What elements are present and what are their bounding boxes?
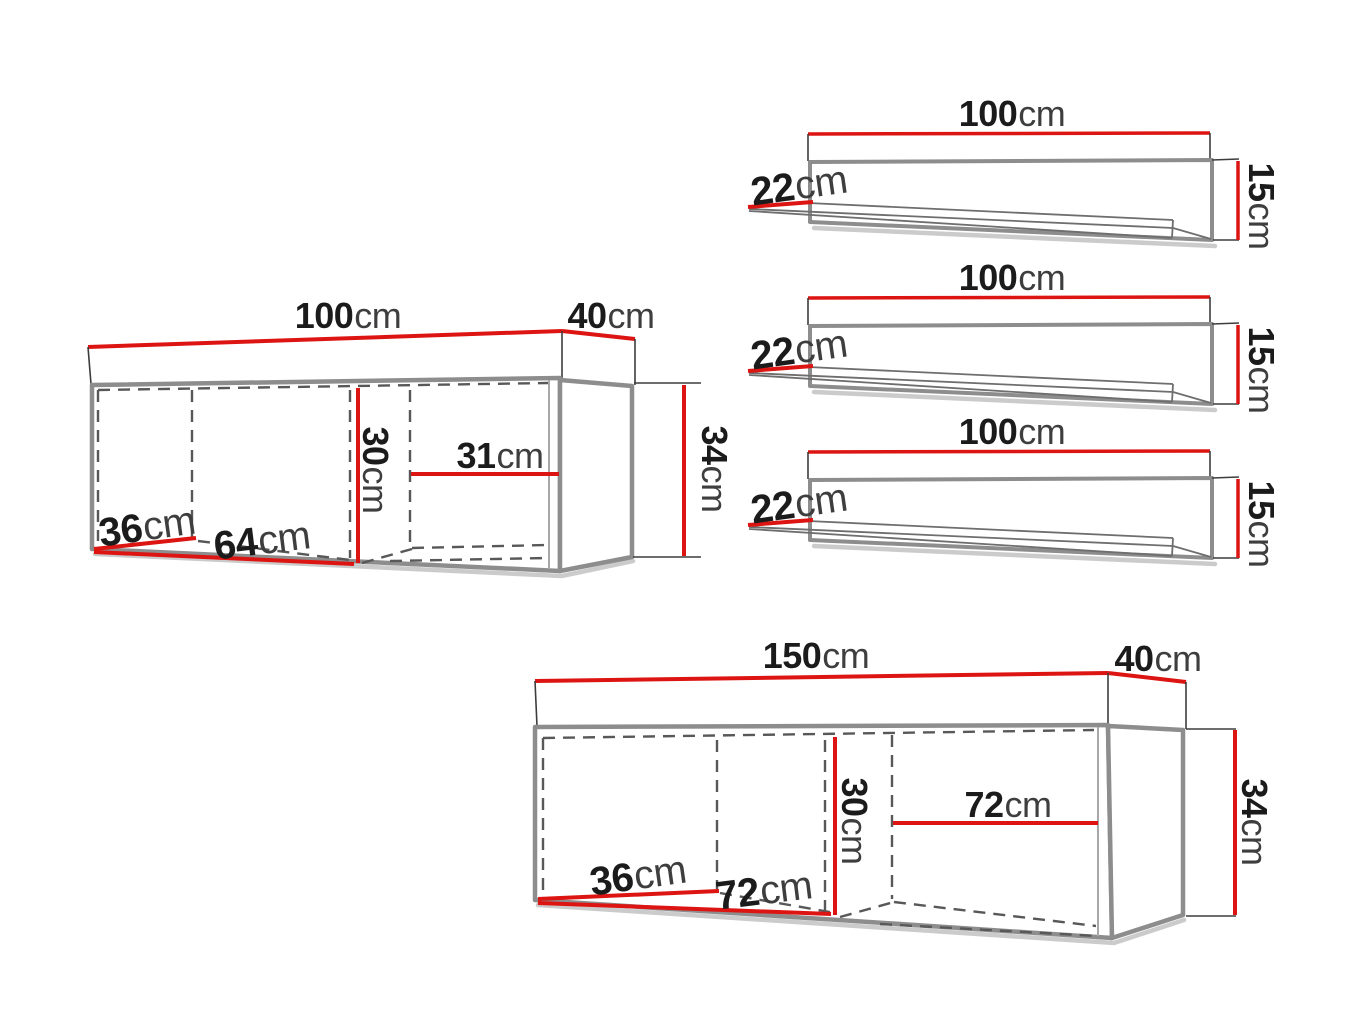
- shelf3-width-value: 100: [959, 411, 1018, 452]
- cabinet150-side-face: [1108, 726, 1183, 938]
- furniture-dimension-diagram: 100cm 22cm 15cm 100cm 22cm 15cm 100cm 22…: [0, 0, 1365, 1024]
- cabinet150-height-extension-ticks: [1186, 729, 1236, 916]
- shelf2-depth-unit: cm: [792, 321, 850, 372]
- cabinet100-depth-label: 40cm: [567, 298, 654, 334]
- cabinet100-height-label: 34cm: [696, 425, 732, 512]
- shelf3-height-value: 15: [1241, 480, 1282, 519]
- cabinet100-inner-depth-unit: cm: [140, 498, 198, 549]
- cabinet100-left-compartment-value: 64: [211, 520, 260, 569]
- cabinet100-right-compartment-value: 31: [456, 435, 495, 476]
- cabinet100-right-compartment-unit: cm: [497, 435, 544, 476]
- shelf2-depth-value: 22: [748, 329, 797, 379]
- cabinet100-depth-value: 40: [567, 295, 606, 336]
- cabinet100-width-value: 100: [295, 295, 354, 336]
- shelf1-height-unit: cm: [1241, 203, 1282, 250]
- cabinet150-width-value: 150: [763, 635, 822, 676]
- cabinet100-height-value: 34: [694, 425, 735, 464]
- cabinet150-inner-height-unit: cm: [834, 818, 875, 865]
- cabinet150-right-compartment-value: 72: [964, 784, 1003, 825]
- cabinet150-height-label: 34cm: [1236, 778, 1272, 865]
- cabinet150-depth-unit: cm: [1155, 638, 1202, 679]
- shelf3-height-unit: cm: [1241, 521, 1282, 568]
- cabinet100-right-compartment-label: 31cm: [456, 438, 543, 474]
- shelf1-depth-unit: cm: [792, 157, 850, 208]
- shelf3-height-label: 15cm: [1243, 480, 1279, 567]
- cabinet150-depth-label: 40cm: [1114, 641, 1201, 677]
- shelf2-width-label: 100cm: [959, 260, 1066, 296]
- cabinet100-width-label: 100cm: [295, 298, 402, 334]
- cabinet150-height-value: 34: [1234, 778, 1275, 817]
- cabinet100-side-face: [560, 380, 632, 571]
- cabinet150-inner-depth-value: 36: [587, 855, 636, 905]
- cabinet150-inner-height-label: 30cm: [836, 777, 872, 864]
- shelf2-width-value: 100: [959, 257, 1018, 298]
- cabinet150-right-compartment-unit: cm: [1005, 784, 1052, 825]
- shelf3-width-label: 100cm: [959, 414, 1066, 450]
- shelf3-depth-value: 22: [748, 483, 797, 533]
- shelf1-depth-value: 22: [748, 165, 797, 215]
- shelf1-height-value: 15: [1241, 162, 1282, 201]
- cabinet100-inner-height-value: 30: [355, 426, 396, 465]
- cabinet100-inner-depth-value: 36: [96, 506, 145, 556]
- shelf2-width-unit: cm: [1018, 257, 1065, 298]
- shelf3-depth-unit: cm: [792, 475, 850, 526]
- shelf1-width-value: 100: [959, 93, 1018, 134]
- cabinet150-inner-depth-unit: cm: [631, 847, 689, 898]
- cabinet100-height-extension-ticks: [633, 383, 701, 557]
- cabinet150-left-compartment-unit: cm: [757, 863, 814, 913]
- shelf2-height-label: 15cm: [1243, 326, 1279, 413]
- shelf2-height-value: 15: [1241, 326, 1282, 365]
- shelf1-width-label: 100cm: [959, 96, 1066, 132]
- cabinet150-right-compartment-label: 72cm: [964, 787, 1051, 823]
- cabinet150-width-label: 150cm: [763, 638, 870, 674]
- cabinet150-width-unit: cm: [822, 635, 869, 676]
- cabinet100-height-unit: cm: [694, 466, 735, 513]
- cabinet100-inner-height-label: 30cm: [357, 426, 393, 513]
- shelf1-width-unit: cm: [1018, 93, 1065, 134]
- cabinet150-left-compartment-value: 72: [713, 870, 762, 919]
- shelf1-height-label: 15cm: [1243, 162, 1279, 249]
- cabinet100-depth-unit: cm: [608, 295, 655, 336]
- cabinet100-inner-height-unit: cm: [355, 467, 396, 514]
- cabinet150-depth-value: 40: [1114, 638, 1153, 679]
- shelf2-height-unit: cm: [1241, 367, 1282, 414]
- cabinet100-left-compartment-unit: cm: [255, 513, 312, 563]
- wall-cabinet-150: [535, 673, 1236, 943]
- cabinet100-width-unit: cm: [354, 295, 401, 336]
- cabinet150-height-unit: cm: [1234, 819, 1275, 866]
- shelf3-width-unit: cm: [1018, 411, 1065, 452]
- cabinet150-inner-height-value: 30: [834, 777, 875, 816]
